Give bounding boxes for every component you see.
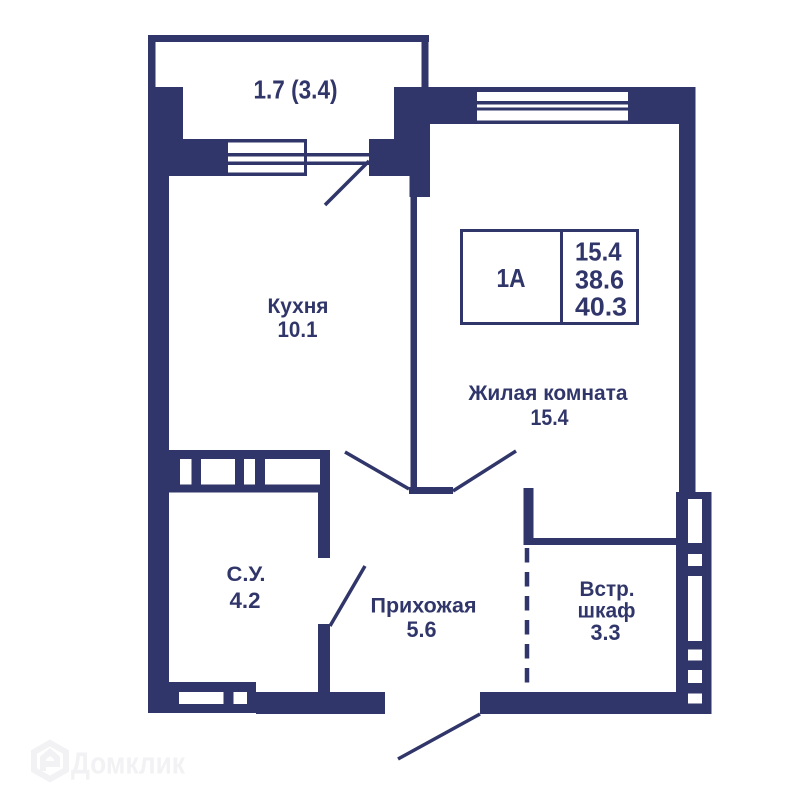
svg-text:Кухня: Кухня (268, 294, 329, 318)
svg-text:1А: 1А (497, 263, 526, 293)
svg-text:4.2: 4.2 (230, 588, 261, 613)
svg-text:10.1: 10.1 (278, 317, 318, 342)
svg-text:1.7 (3.4): 1.7 (3.4) (254, 75, 338, 105)
svg-text:40.3: 40.3 (575, 292, 627, 322)
svg-text:шкаф: шкаф (578, 599, 636, 623)
svg-text:Прихожая: Прихожая (371, 594, 477, 618)
svg-text:Жилая комната: Жилая комната (468, 381, 629, 405)
svg-text:15.4: 15.4 (531, 405, 569, 430)
svg-text:Встр.: Встр. (580, 577, 635, 601)
svg-text:15.4: 15.4 (575, 237, 622, 267)
svg-text:3.3: 3.3 (591, 620, 621, 645)
svg-text:38.6: 38.6 (575, 265, 624, 295)
svg-text:Домклик: Домклик (71, 746, 185, 781)
svg-text:С.У.: С.У. (227, 562, 266, 586)
svg-text:5.6: 5.6 (407, 617, 437, 642)
